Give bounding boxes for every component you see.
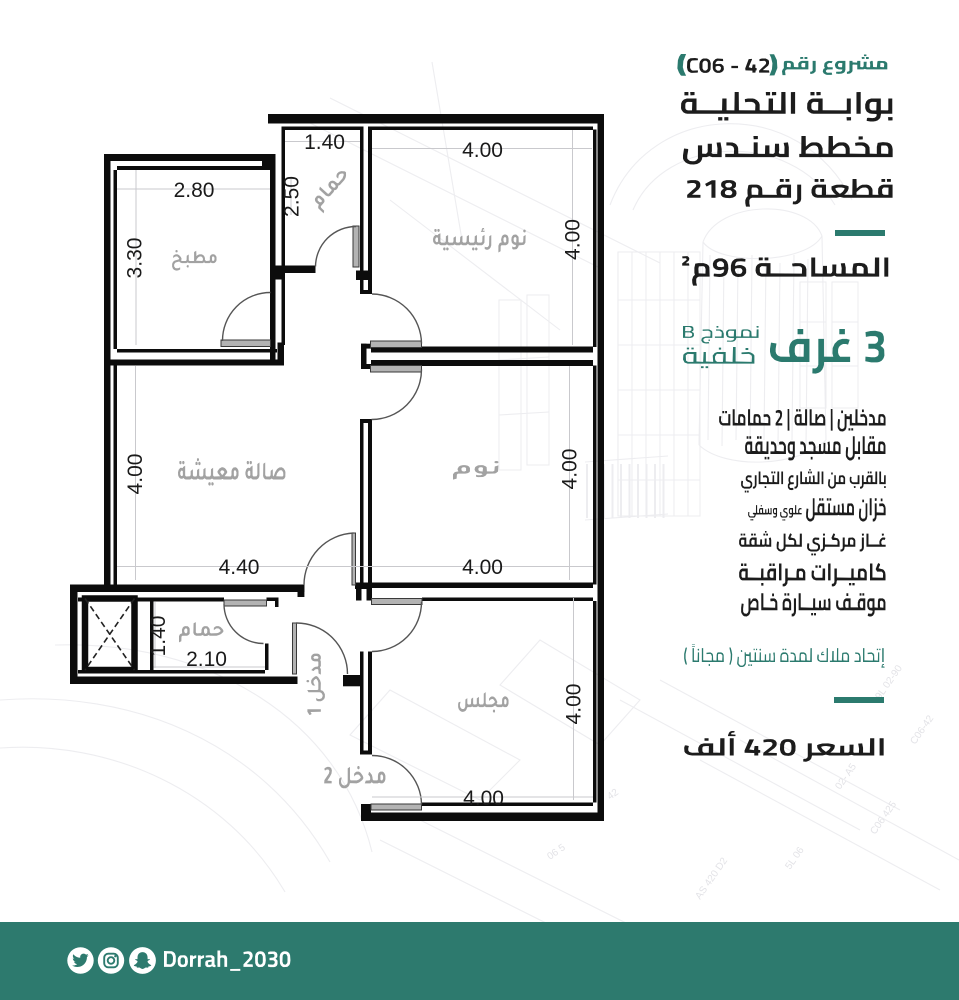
svg-text:4.00: 4.00	[559, 449, 582, 490]
svg-text:4.00: 4.00	[462, 556, 503, 579]
svg-text:4.00: 4.00	[463, 787, 504, 810]
svg-text:1.40: 1.40	[147, 616, 170, 657]
svg-text:4.00: 4.00	[563, 684, 586, 725]
svg-text:1.40: 1.40	[304, 131, 345, 154]
svg-text:2.10: 2.10	[186, 648, 227, 671]
svg-text:4.00: 4.00	[124, 454, 147, 495]
svg-text:4.00: 4.00	[462, 139, 503, 162]
svg-text:2.50: 2.50	[281, 176, 304, 217]
svg-text:4.40: 4.40	[219, 556, 260, 579]
svg-text:3.30: 3.30	[124, 238, 147, 279]
svg-text:4.00: 4.00	[562, 219, 585, 260]
svg-text:2.80: 2.80	[174, 179, 215, 202]
